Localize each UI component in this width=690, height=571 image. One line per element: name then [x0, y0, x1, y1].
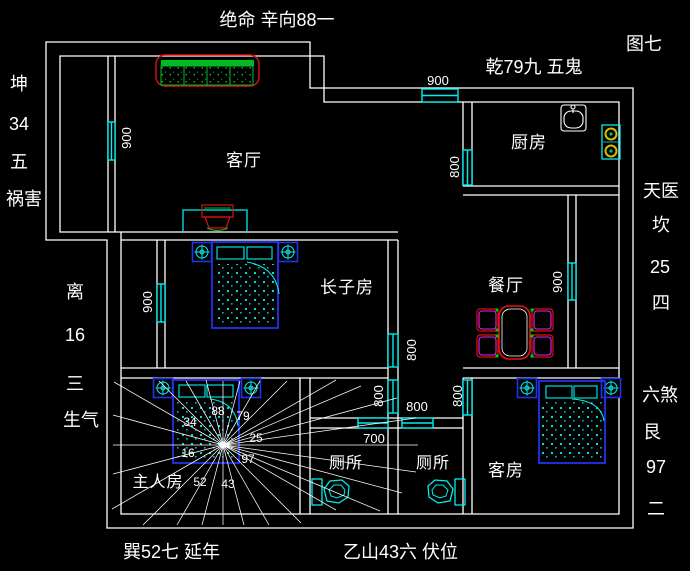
room-label-master: 主人房	[132, 473, 183, 491]
window-kitchen-west	[463, 150, 472, 185]
floorplan-drawing: 绝命 辛向88一 图七 乾79九 五鬼 坤 34 五 祸害 离 16 三 生气 …	[0, 0, 690, 571]
nightstand-icon	[193, 243, 212, 262]
dim-top-window: 900	[427, 73, 449, 88]
annotation-liusha: 六煞	[642, 385, 678, 405]
dim-toilet1-window-left: 800	[371, 385, 386, 407]
annotation-gen-number: 97	[646, 457, 666, 477]
dim-living-west-window: 900	[119, 127, 134, 149]
annotation-huohai: 祸害	[6, 189, 42, 209]
nightstand-icon	[279, 243, 298, 262]
compass-number-gen: 97	[241, 452, 255, 466]
compass-number-yi: 43	[221, 477, 235, 491]
annotation-bottom-left: 巽52七 延年	[123, 542, 220, 562]
dining-chair	[532, 309, 553, 331]
window-living-west	[108, 122, 115, 160]
room-label-dining: 餐厅	[488, 276, 524, 295]
dim-hall-upper-window: 800	[404, 339, 419, 361]
stove	[602, 125, 620, 159]
annotation-tianyi: 天医	[643, 181, 679, 201]
nightstand-icon	[242, 379, 261, 398]
annotation-kun-number: 34	[9, 114, 29, 134]
bed-guest	[518, 379, 621, 464]
sofa	[156, 55, 259, 86]
window-hall-lower	[388, 380, 398, 413]
compass-number-xun: 52	[193, 475, 207, 489]
dim-kitchen-west-window: 800	[447, 156, 462, 178]
annotation-bottom-right: 乙山43六 伏位	[343, 542, 458, 562]
toilet-fixture-2	[428, 479, 465, 505]
annotation-li-star: 三	[66, 374, 84, 394]
dining-set	[477, 306, 553, 359]
bed-eldest-son	[193, 242, 298, 328]
chair-joints	[496, 309, 534, 358]
annotation-li: 离	[66, 282, 84, 302]
window-toilet1-top	[358, 418, 388, 428]
room-label-toilet-2: 厕所	[416, 454, 450, 472]
room-label-living: 客厅	[226, 151, 262, 170]
compass-number-xin: 88	[211, 404, 225, 418]
annotation-kun-star: 五	[10, 152, 28, 172]
room-label-eldest-son: 长子房	[320, 278, 374, 297]
window-hall-upper	[388, 334, 398, 367]
floorplan-canvas: 绝命 辛向88一 图七 乾79九 五鬼 坤 34 五 祸害 离 16 三 生气 …	[0, 0, 690, 571]
annotation-kan-number: 25	[650, 257, 670, 277]
kitchen-sink	[561, 105, 586, 131]
annotation-gen-star: 二	[647, 499, 665, 519]
windows	[108, 89, 576, 428]
compass-number-qian: 79	[236, 409, 250, 423]
dim-hall-width: 800	[406, 399, 428, 414]
tv-cabinet	[183, 205, 247, 232]
compass-number-kun: 34	[183, 415, 197, 429]
annotation-gen: 艮	[643, 422, 661, 442]
compass-number-kan: 25	[249, 431, 263, 445]
room-label-guest: 客房	[488, 461, 524, 480]
compass-number-li: 16	[181, 446, 195, 460]
annotation-figure: 图七	[626, 34, 662, 54]
annotation-shengqi: 生气	[63, 410, 99, 430]
dining-chair	[477, 335, 498, 357]
annotation-kan-star: 四	[652, 293, 670, 313]
window-top	[422, 89, 458, 102]
annotation-top: 绝命 辛向88一	[219, 10, 334, 30]
dim-dining-east-window: 900	[550, 271, 565, 293]
annotation-li-number: 16	[65, 325, 85, 345]
window-son-west	[157, 284, 165, 322]
annotation-kun: 坤	[10, 74, 28, 94]
room-label-kitchen: 厨房	[511, 133, 547, 152]
dim-guest-west-window: 800	[450, 385, 465, 407]
annotation-northwest: 乾79九 五鬼	[485, 57, 582, 77]
annotation-kan: 坎	[652, 215, 670, 235]
window-dining-east	[568, 263, 576, 300]
dining-chair	[532, 335, 553, 357]
dim-toilet1-width: 700	[363, 431, 385, 446]
room-label-toilet-1: 厕所	[329, 454, 363, 472]
nightstand-icon	[518, 379, 537, 398]
dining-chair	[477, 309, 498, 331]
nightstand-icon	[154, 379, 173, 398]
toilet-fixture-1	[312, 479, 349, 505]
dim-son-west-window: 900	[140, 291, 155, 313]
